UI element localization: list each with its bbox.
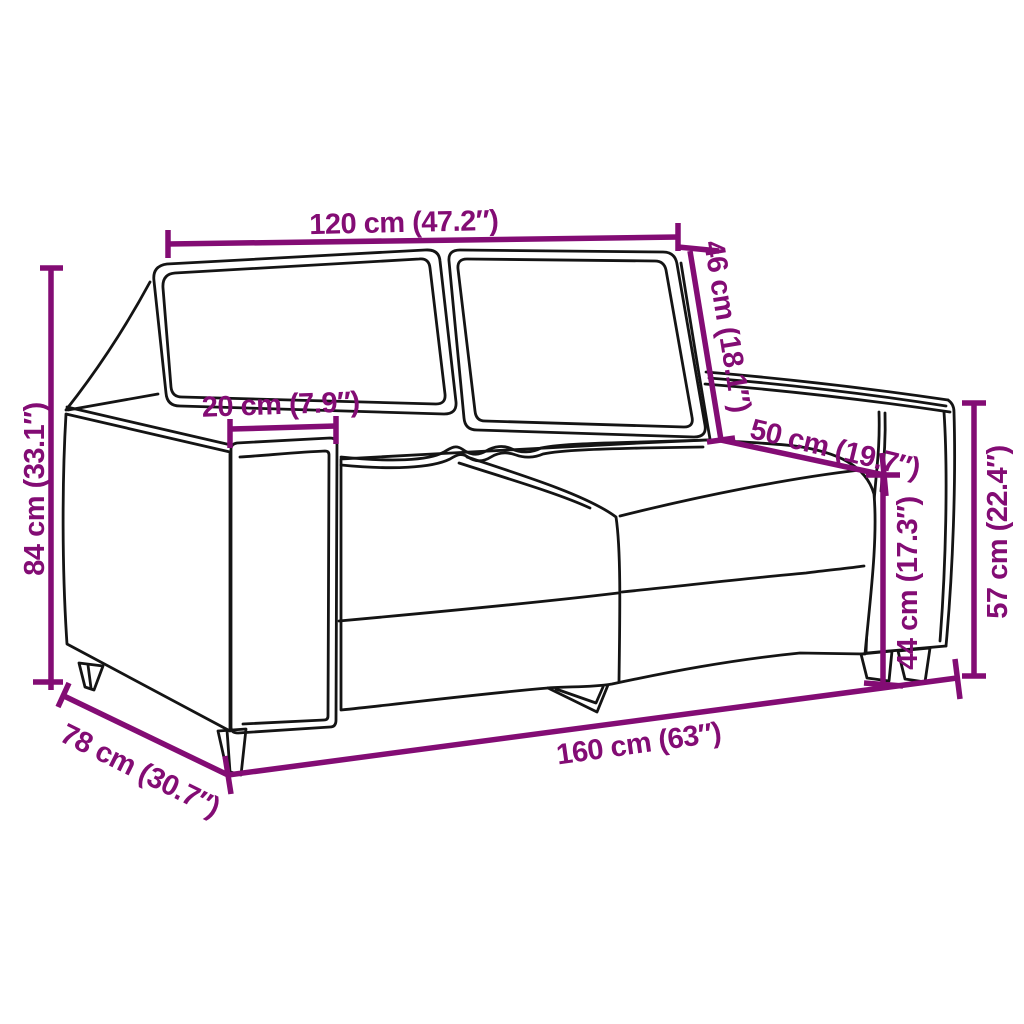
dim-label-overall-height: 84 cm (33.1″) bbox=[19, 402, 51, 575]
seat-base bbox=[339, 440, 875, 710]
armrest-left bbox=[63, 407, 337, 733]
diagram-canvas: 120 cm (47.2″) 46 cm (18.1″) 20 cm (7.9″… bbox=[0, 0, 1024, 1024]
dim-label-overall-width: 160 cm (63″) bbox=[554, 717, 723, 772]
sofa-dimension-diagram: 120 cm (47.2″) 46 cm (18.1″) 20 cm (7.9″… bbox=[0, 0, 1024, 1024]
dim-label-seat-height: 44 cm (17.3″) bbox=[892, 496, 924, 669]
dim-label-backrest-height: 46 cm (18.1″) bbox=[697, 238, 757, 414]
dim-label-armrest-width: 20 cm (7.9″) bbox=[201, 386, 360, 423]
back-cushion-right bbox=[449, 250, 705, 437]
dim-label-armrest-height: 57 cm (22.4″) bbox=[982, 445, 1014, 618]
dim-label-back-width: 120 cm (47.2″) bbox=[309, 205, 499, 241]
